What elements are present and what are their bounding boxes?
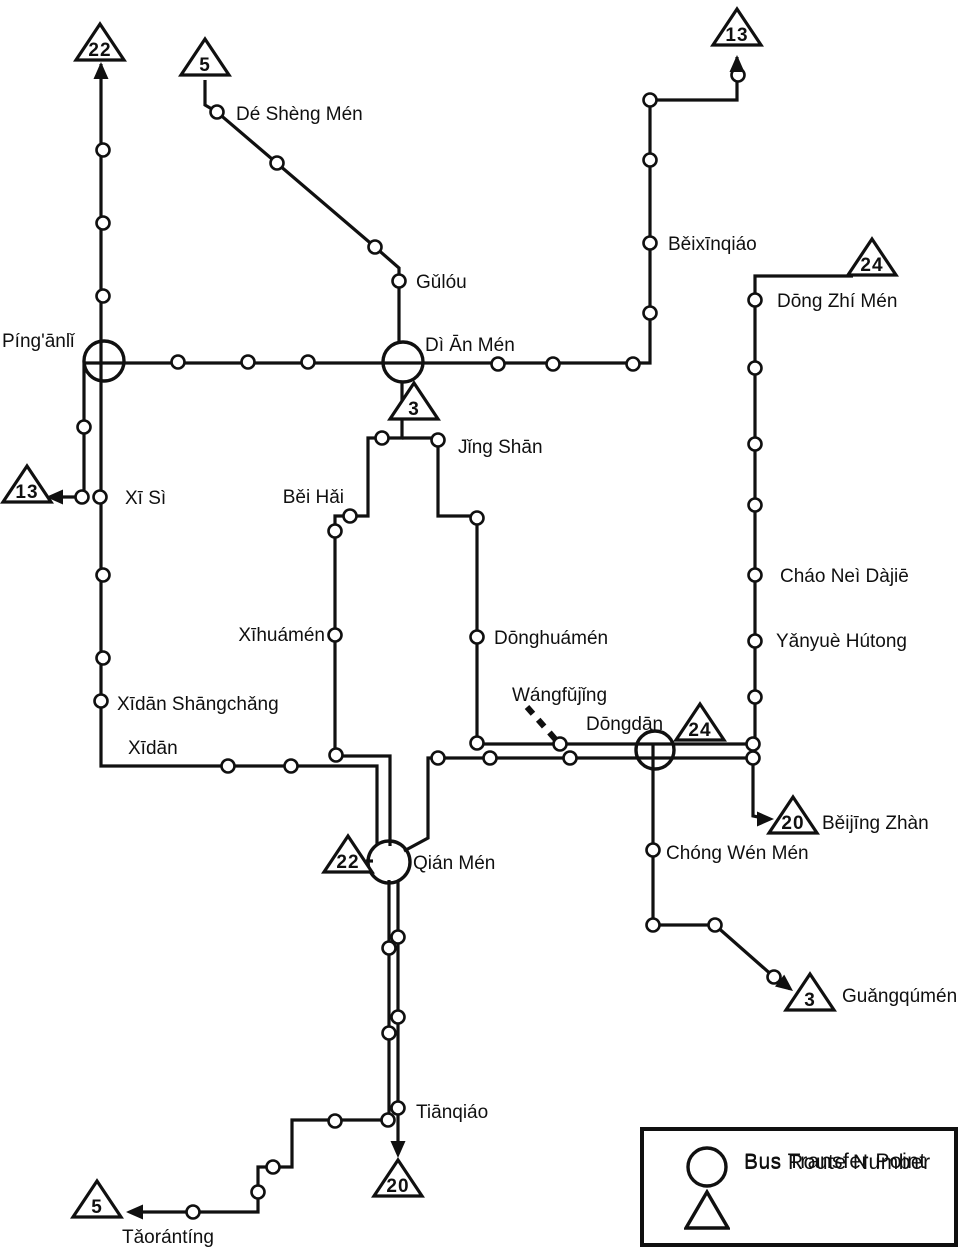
- station-label: Běixīnqiáo: [668, 234, 757, 255]
- direction-arrow: [757, 812, 774, 827]
- bus-stop: [749, 294, 762, 307]
- bus-stop: [644, 237, 657, 250]
- bus-stop: [78, 421, 91, 434]
- bus-stop: [749, 499, 762, 512]
- bus-stop: [383, 942, 396, 955]
- bus-stop: [172, 356, 185, 369]
- station-label: Tǎorántíng: [122, 1227, 214, 1248]
- station-label: Xīdān: [128, 738, 178, 759]
- bus-stop: [647, 919, 660, 932]
- bus-stop: [432, 434, 445, 447]
- bus-stop: [749, 691, 762, 704]
- bus-stop: [329, 1115, 342, 1128]
- bus-stop: [749, 438, 762, 451]
- bus-stop: [382, 1114, 395, 1127]
- bus-stop: [330, 749, 343, 762]
- bus-stop: [97, 290, 110, 303]
- bus-stop: [492, 358, 505, 371]
- bus-stop: [747, 738, 760, 751]
- route-badge-number: 13: [15, 482, 38, 503]
- station-label: Gǔlóu: [416, 272, 467, 293]
- legend-route-label: Bus Route Number: [744, 1151, 931, 1175]
- station-label: Guǎngqúmén: [842, 986, 957, 1007]
- direction-arrow: [391, 1141, 406, 1158]
- bus-route-line-route-20-main: [404, 758, 753, 851]
- route-badge-number: 5: [199, 55, 211, 76]
- route-badge-number: 3: [804, 990, 816, 1011]
- station-label: Wángfǔjǐng: [512, 685, 607, 706]
- bus-stop: [344, 510, 357, 523]
- bus-stop: [267, 1161, 280, 1174]
- station-label: Dōngdān: [586, 714, 663, 735]
- bus-stop: [547, 358, 560, 371]
- route-number-icon: [684, 1189, 730, 1233]
- route-badge-number: 20: [386, 1176, 409, 1197]
- route-badge-number: 24: [860, 255, 883, 276]
- station-label: Běi Hǎi: [283, 487, 344, 508]
- transfer-point-circle: [636, 731, 674, 769]
- bus-stop: [97, 569, 110, 582]
- route-badge-number: 22: [336, 852, 359, 873]
- route-badge-number: 3: [408, 399, 420, 420]
- bus-stop: [392, 1011, 405, 1024]
- bus-stop: [242, 356, 255, 369]
- bus-stop: [709, 919, 722, 932]
- bus-stop: [302, 356, 315, 369]
- beijing-bus-route-map: 22513241332420223205Dé Shèng MénGǔlóuBěi…: [0, 0, 971, 1254]
- bus-stop: [94, 491, 107, 504]
- bus-stop: [644, 307, 657, 320]
- station-label: Xī Sì: [125, 488, 166, 509]
- bus-route-line-route-5-south-stairs: [138, 880, 389, 1212]
- bus-stop: [627, 358, 640, 371]
- station-label: Dé Shèng Mén: [236, 104, 363, 125]
- bus-stop: [383, 1027, 396, 1040]
- bus-stop: [329, 629, 342, 642]
- direction-arrow: [126, 1205, 143, 1220]
- bus-route-line-route-3-south-branch: [653, 744, 790, 989]
- route-badge-number: 20: [781, 813, 804, 834]
- bus-stop: [749, 362, 762, 375]
- bus-stop: [749, 569, 762, 582]
- station-label: Xīdān Shāngchǎng: [117, 694, 279, 715]
- bus-stop: [187, 1206, 200, 1219]
- bus-stop: [644, 154, 657, 167]
- beijing-bus-route-map-page: 22513241332420223205Dé Shèng MénGǔlóuBěi…: [0, 0, 971, 1254]
- bus-stop: [484, 752, 497, 765]
- bus-stop: [329, 525, 342, 538]
- station-label: Píng'ānlǐ: [2, 331, 76, 352]
- dashed-pointer-wangfujing-pointer: [527, 707, 556, 740]
- bus-stop: [76, 491, 89, 504]
- bus-stop: [747, 752, 760, 765]
- route-badge-number: 22: [88, 40, 111, 61]
- transfer-point-circle: [84, 341, 124, 381]
- bus-stop: [97, 144, 110, 157]
- station-label: Qián Mén: [413, 853, 495, 874]
- route-badge-number: 24: [688, 720, 711, 741]
- bus-stop: [554, 738, 567, 751]
- bus-stop: [471, 737, 484, 750]
- bus-stop: [252, 1186, 265, 1199]
- station-label: Jǐng Shān: [458, 437, 543, 458]
- transfer-point-icon: [684, 1145, 730, 1189]
- transfer-point-circle: [368, 841, 410, 883]
- bus-stop: [95, 695, 108, 708]
- station-label: Tiānqiáo: [416, 1102, 488, 1123]
- bus-stop: [392, 1102, 405, 1115]
- bus-stop: [471, 631, 484, 644]
- station-label: Běijīng Zhàn: [822, 813, 929, 834]
- bus-stop: [222, 760, 235, 773]
- bus-stop: [97, 652, 110, 665]
- bus-stop: [768, 971, 781, 984]
- station-label: Chóng Wén Mén: [666, 843, 809, 864]
- legend-row-route: Bus Route Number: [644, 1187, 954, 1231]
- station-label: Cháo Neì Dàjiē: [780, 566, 909, 587]
- bus-stop: [285, 760, 298, 773]
- route-badge-number: 5: [91, 1197, 103, 1218]
- bus-stop: [471, 512, 484, 525]
- station-label: Dōng Zhí Mén: [777, 291, 897, 312]
- bus-route-line-route-5-west-palace-loop: [335, 381, 402, 846]
- bus-stop: [393, 275, 406, 288]
- route-badge-number: 13: [725, 25, 748, 46]
- bus-stop: [644, 94, 657, 107]
- bus-route-line-route-20-beijing-zhan-spur: [753, 758, 768, 819]
- bus-stop: [271, 157, 284, 170]
- station-label: Dōnghuámén: [494, 628, 608, 649]
- bus-stop: [647, 844, 660, 857]
- station-label: Yǎnyuè Hútong: [776, 631, 907, 652]
- bus-stop: [392, 931, 405, 944]
- bus-stop: [749, 635, 762, 648]
- station-label: Dì Ān Mén: [425, 335, 515, 356]
- direction-arrow: [730, 55, 745, 72]
- bus-stop: [97, 217, 110, 230]
- bus-stop: [376, 432, 389, 445]
- bus-stop: [369, 241, 382, 254]
- bus-route-line-route-24-vertical: [755, 276, 853, 744]
- legend: Bus Transfer Point Bus Route Number: [640, 1127, 958, 1247]
- bus-stop: [211, 106, 224, 119]
- bus-stop: [432, 752, 445, 765]
- bus-stop: [564, 752, 577, 765]
- direction-arrow: [94, 62, 109, 79]
- station-label: Xīhuámén: [238, 625, 325, 646]
